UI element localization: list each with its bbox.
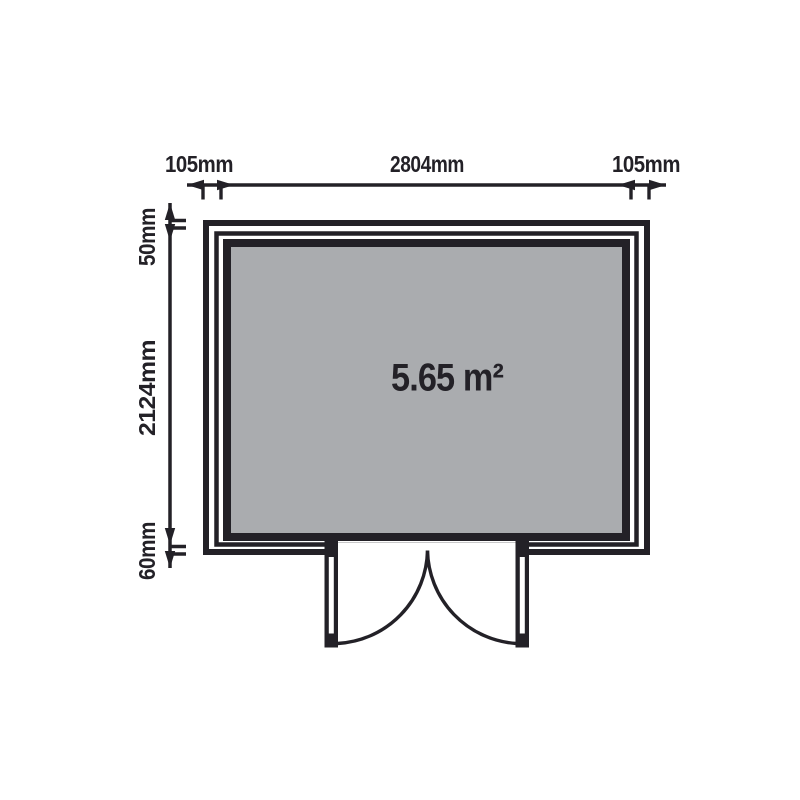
top-right-dim-label: 105mm — [612, 151, 680, 177]
floor-plan-page: 105mm 2804mm 105mm 50mm 2124mm 60mm 5.65… — [0, 0, 800, 800]
top-left-dim-label: 105mm — [165, 151, 233, 177]
side-bottom-dim-label: 60mm — [134, 522, 160, 580]
left-arrow-top-end — [165, 203, 175, 220]
left-arrow-top-inner — [165, 224, 175, 241]
side-top-dim-label: 50mm — [134, 208, 160, 266]
top-arrow-right-inner — [618, 180, 635, 190]
left-door-leaf-core — [329, 557, 334, 634]
left-dimension: 50mm 2124mm 60mm — [134, 203, 186, 580]
floor-plan-svg: 105mm 2804mm 105mm 50mm 2124mm 60mm 5.65… — [0, 0, 800, 800]
left-arrow-bottom-end — [165, 551, 175, 568]
left-door-swing-arc — [338, 551, 428, 644]
top-dimension: 105mm 2804mm 105mm — [165, 151, 680, 200]
top-arrow-left-inner — [217, 180, 234, 190]
right-door-leaf-core — [520, 557, 525, 634]
side-middle-dim-label: 2124mm — [134, 340, 160, 436]
area-label: 5.65 m² — [391, 357, 504, 400]
left-arrow-bottom-inner — [165, 528, 175, 545]
top-arrow-left-end — [187, 180, 204, 190]
top-arrow-right-end — [649, 180, 666, 190]
right-door-swing-arc — [428, 551, 517, 644]
top-center-dim-label: 2804mm — [390, 151, 464, 177]
